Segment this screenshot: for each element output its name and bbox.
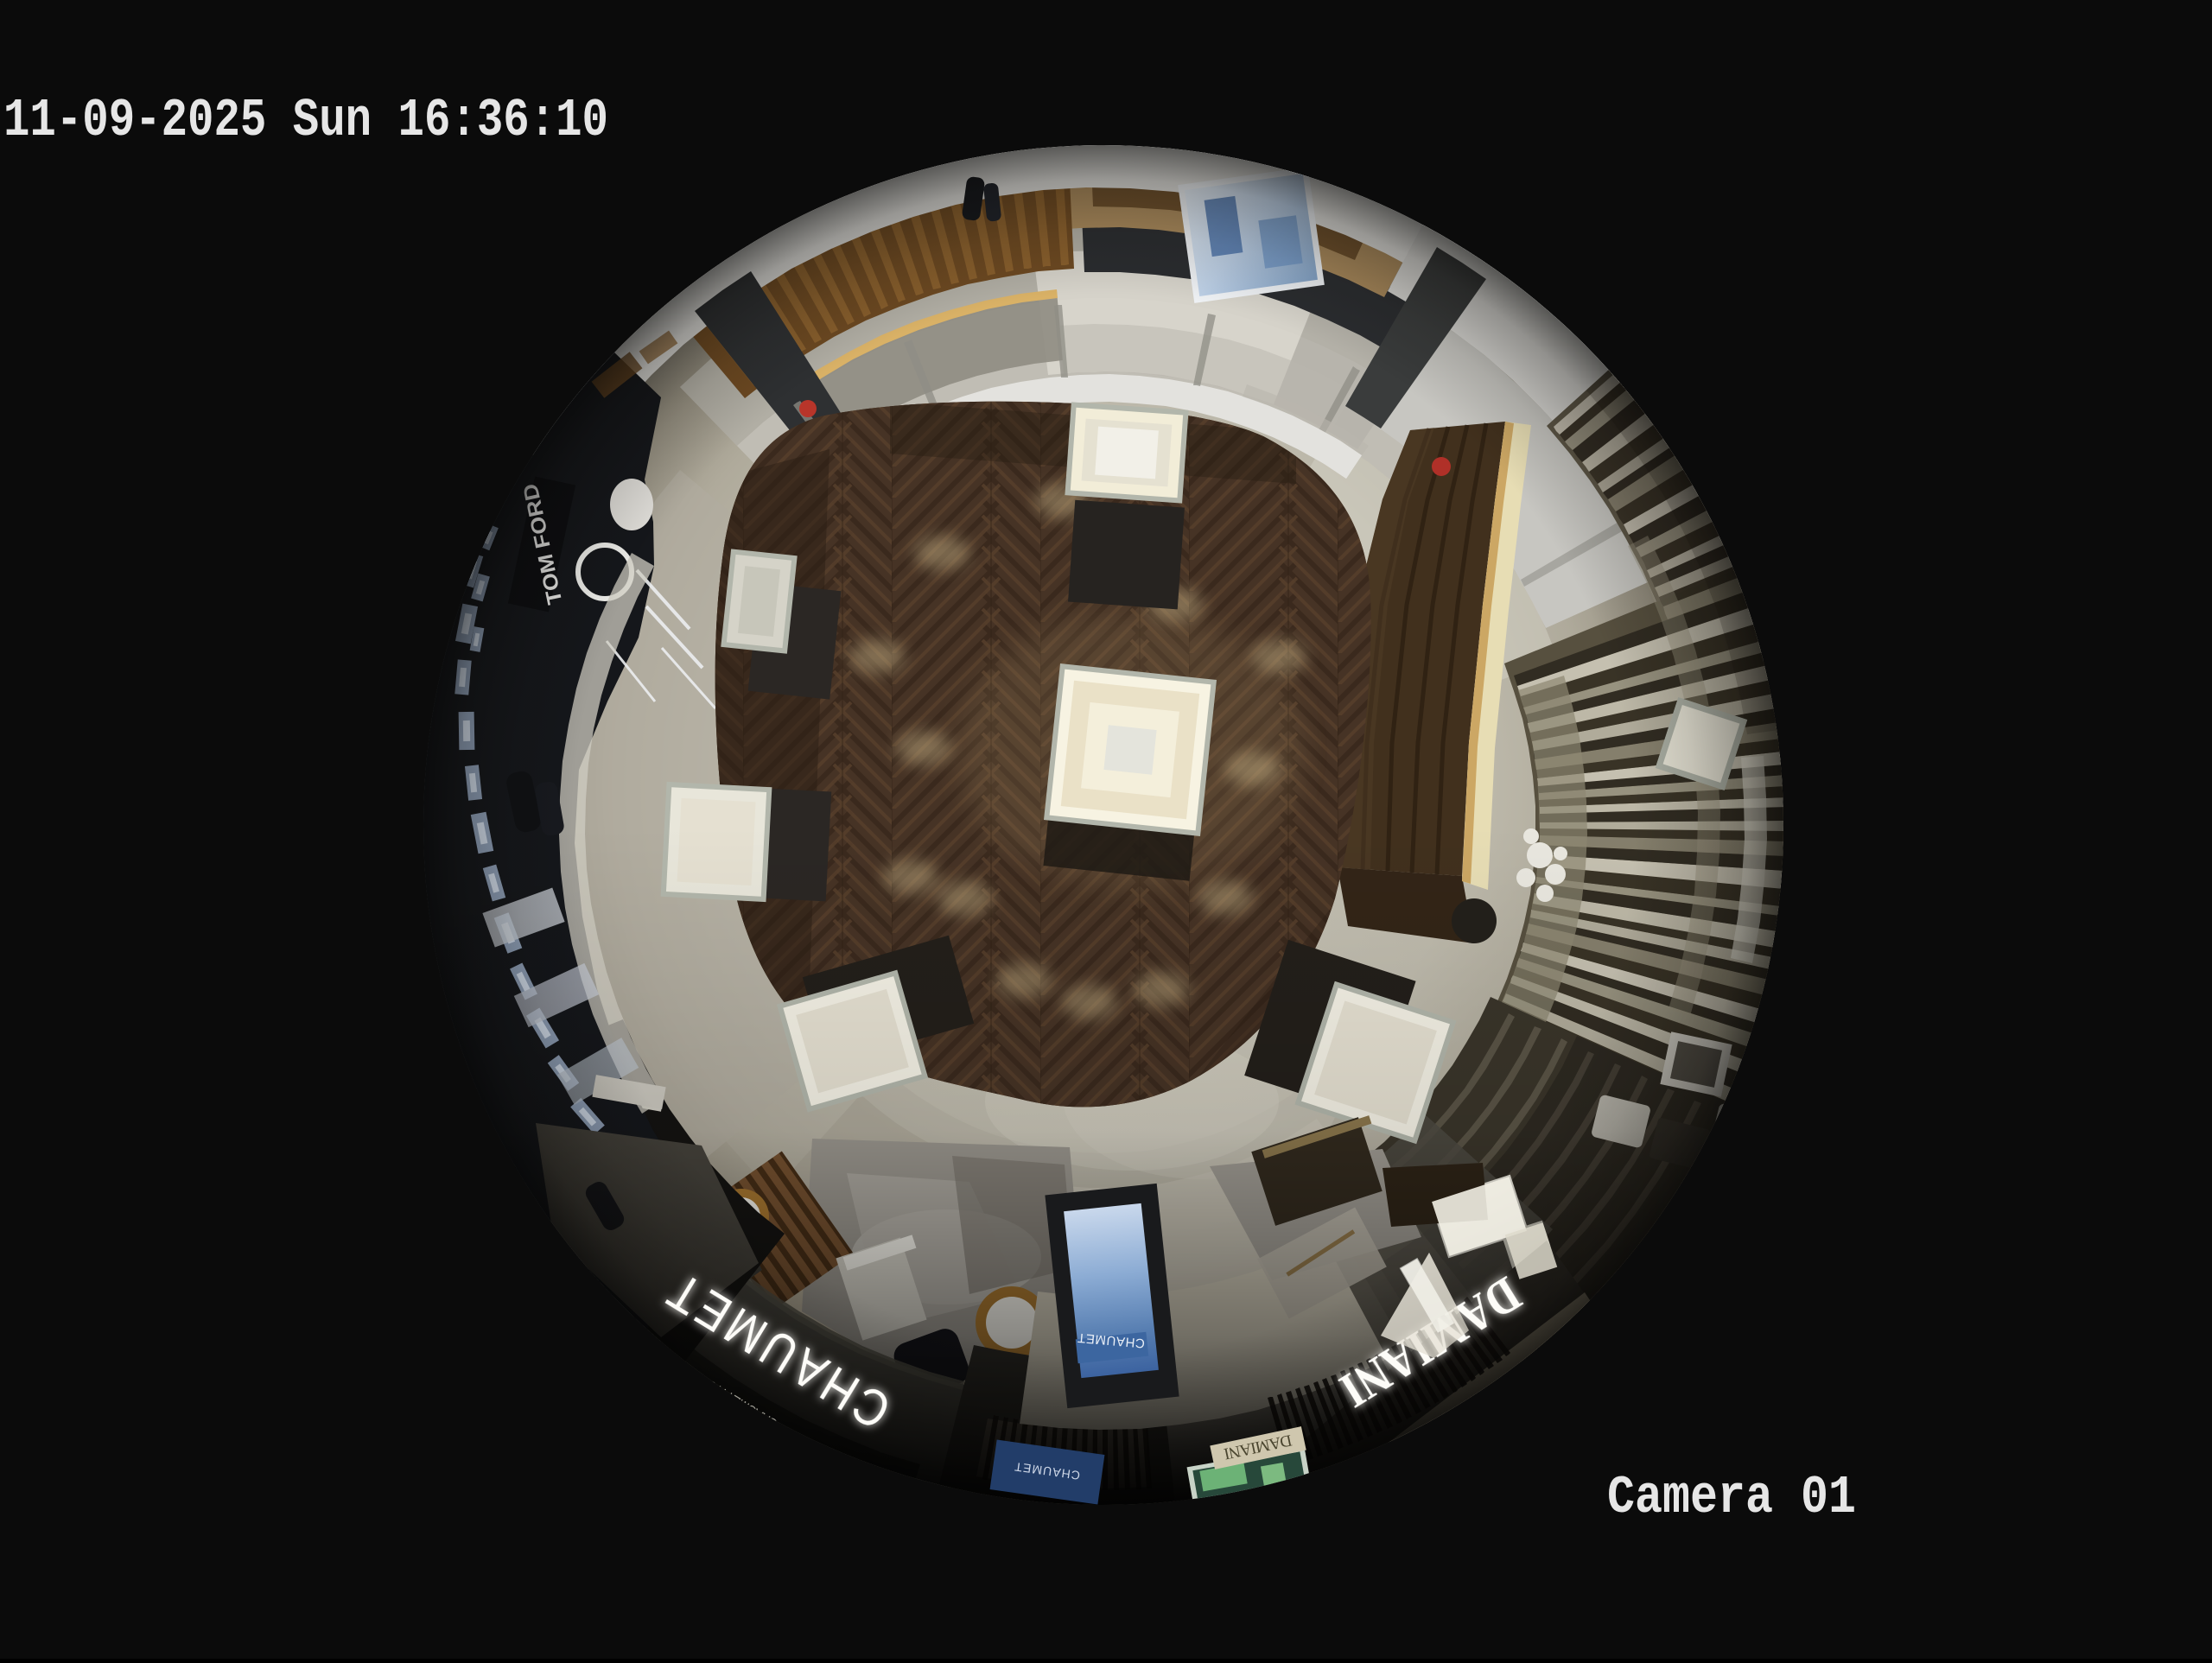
svg-text:Camera 01: Camera 01 — [1607, 1467, 1856, 1528]
svg-text:11-09-2025 Sun 16:36:10: 11-09-2025 Sun 16:36:10 — [3, 90, 608, 151]
